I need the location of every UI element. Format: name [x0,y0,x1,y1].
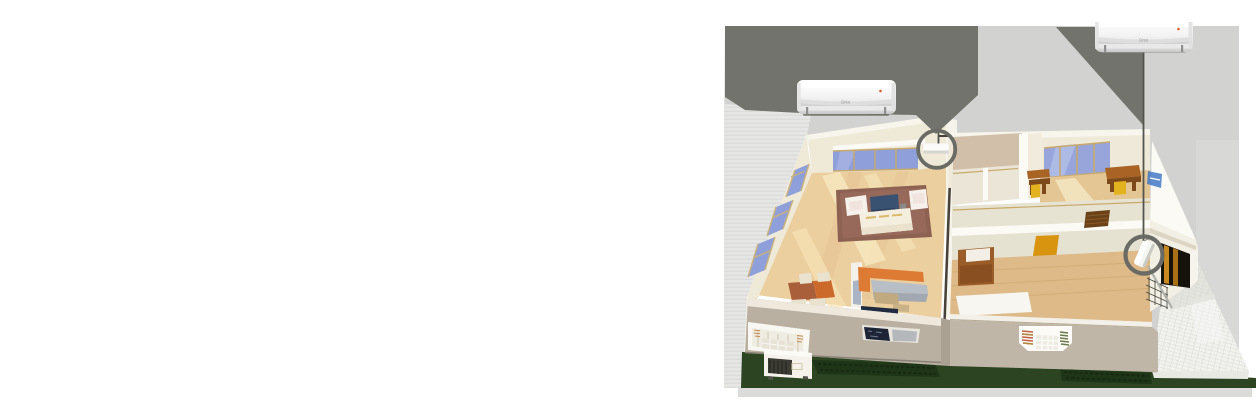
svg-text:Gree: Gree [1139,38,1149,43]
svg-text:Gree: Gree [841,100,851,105]
